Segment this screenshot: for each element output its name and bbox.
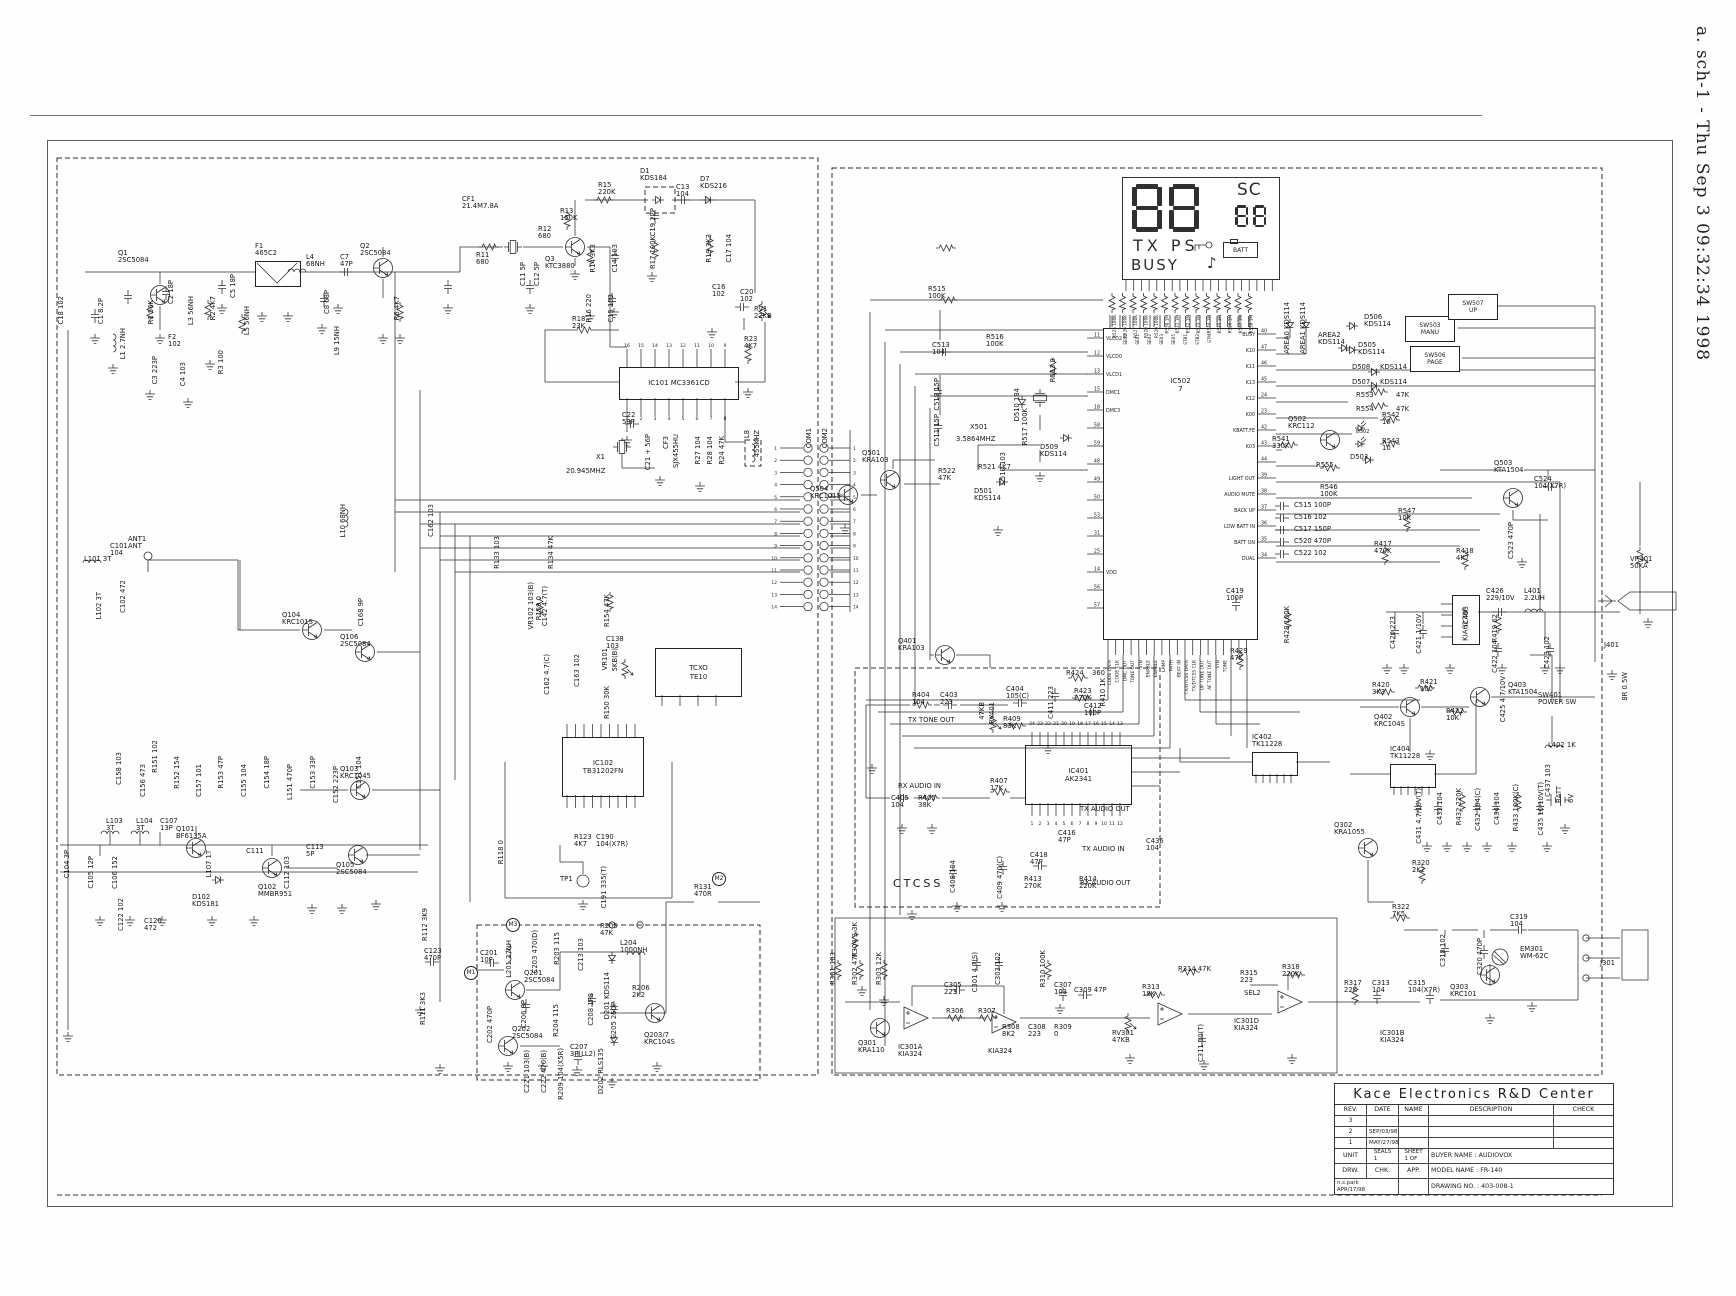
component-label: X1 — [596, 454, 605, 461]
component-label: KDS114 — [1380, 379, 1407, 386]
ground-icon — [1517, 558, 1527, 568]
pin-label: 34 — [1261, 553, 1267, 559]
component-label: C524 104(X7R) — [1534, 476, 1566, 491]
component-label: VR101 — [602, 648, 609, 670]
component-label: C162 4.7(C) — [544, 654, 551, 695]
pin-label: 31 — [1094, 531, 1100, 537]
pin-label: 2 — [640, 416, 643, 422]
pin-label: 20 — [1061, 721, 1067, 727]
pin-label: TONE OUT — [1130, 660, 1136, 684]
component-label: C104 3P — [64, 850, 71, 878]
component-label: C520 470P — [1294, 538, 1331, 545]
pin-label: 12 — [1094, 351, 1100, 357]
title-block-cell: SEP/03/98 — [1367, 1127, 1399, 1138]
title-block-cell: CHECK — [1554, 1104, 1613, 1116]
component-label: C17 104 — [726, 234, 733, 263]
component-label: R517 100K — [1022, 408, 1029, 445]
component-label: D501 KDS114 — [974, 488, 1001, 503]
ground-icon — [1643, 618, 1653, 628]
component-label: C305 223 — [944, 982, 962, 997]
component-label: R515 100K — [928, 286, 946, 301]
title-block-cell: MAY/27/98 — [1367, 1138, 1399, 1149]
ground-icon — [205, 360, 215, 370]
component-label: BATT — [1556, 786, 1563, 803]
pin-label: 16 — [624, 343, 630, 349]
seven-segment-digit — [1169, 184, 1199, 232]
component-label: EM301 WM-62C — [1520, 946, 1548, 961]
component-label: R112 3K9 — [422, 908, 429, 941]
pin-label: 37 — [1261, 505, 1267, 511]
component-label: C436 104 — [1146, 838, 1164, 853]
component-label: TP1 — [560, 876, 573, 883]
component-label: Q201 2SC5084 — [524, 970, 555, 985]
component-label: IC301A KIA324 — [898, 1044, 922, 1059]
component-label: C516 102 — [1294, 514, 1327, 521]
component-label: R521 4K7 — [978, 464, 1011, 471]
pin-label: 3 — [853, 470, 856, 476]
pin-label: 5 — [853, 495, 856, 501]
transistor-icon — [187, 839, 206, 858]
ic-part: AK2341 — [1065, 775, 1092, 783]
component-label: CF3 — [663, 436, 670, 449]
microphone-icon — [1492, 949, 1508, 965]
schematic-page: a. sch-1 - Thu Sep 3 09:32:34 1998 — [0, 0, 1736, 1296]
transistor-icon — [263, 859, 282, 878]
pin-label: 9 — [853, 544, 856, 550]
pin-label: 48 — [1094, 459, 1100, 465]
component-label: R151 102 — [152, 740, 159, 773]
ground-icon — [207, 916, 217, 926]
ground-icon — [371, 900, 381, 910]
pin-label: 24 — [1029, 721, 1035, 727]
component-label: R309 0 — [1054, 1024, 1072, 1039]
component-label: C221 103(B) — [524, 1050, 531, 1093]
seven-segment-digit — [1235, 205, 1248, 227]
component-label: R407 17K — [990, 778, 1008, 793]
title-block-cell: NAME — [1399, 1104, 1429, 1116]
transistor-icon — [881, 471, 900, 490]
component-label: C158 103 — [116, 752, 123, 785]
pin-label: 11 — [694, 343, 700, 349]
component-label: R322 7K5 — [1392, 904, 1410, 919]
title-block-cell: UNIT — [1335, 1149, 1367, 1164]
component-label: C418 47P — [1030, 852, 1048, 867]
title-block-cell: n.s.park APR/17/98 — [1335, 1179, 1399, 1194]
component-label: Q302 KRA1055 — [1334, 822, 1365, 837]
component-label: C106 152 — [112, 856, 119, 889]
title-block-cell — [1399, 1116, 1429, 1127]
title-block-cell: REV. — [1335, 1104, 1367, 1116]
component-label: R428 100K — [1284, 606, 1291, 643]
component-label: CF1 21.4M7.8A — [462, 196, 498, 211]
pin-label: 1 — [1031, 821, 1034, 827]
component-label: L10 68NH — [340, 504, 347, 537]
component-label: C313 104 — [1372, 980, 1390, 995]
component-label: R123 4K7 — [574, 834, 592, 849]
pin-label: 12 — [1117, 821, 1123, 827]
pin-label: 59 — [1094, 441, 1100, 447]
pin-label: AF TONE OUT — [1207, 660, 1213, 690]
component-label: C16 102 — [712, 284, 725, 299]
component-label: C403 223 — [940, 692, 958, 707]
ic-label: F1 465C2 — [255, 243, 277, 258]
component-label: 360 — [1092, 670, 1105, 677]
ground-icon — [1382, 664, 1392, 674]
ground-icon — [578, 900, 588, 910]
component-label: C205 250P — [611, 1002, 618, 1039]
ground-icon — [1445, 664, 1455, 674]
component-label: C308 223 — [1028, 1024, 1046, 1039]
pin-label: 38 — [1261, 489, 1267, 495]
component-label: C22 59P — [622, 412, 635, 427]
component-label: R308 8K2 — [1002, 1024, 1020, 1039]
led-icon — [1355, 437, 1366, 447]
component-label: C515 100P — [1294, 502, 1331, 509]
ic-ref: TCXO — [689, 664, 708, 672]
switch-sw507: SW507UP — [1448, 294, 1498, 320]
component-label: C155 104 — [241, 764, 248, 797]
title-block-cell — [1399, 1127, 1429, 1138]
component-label: COM1 — [806, 428, 813, 448]
component-label: R413 270K — [1024, 876, 1042, 891]
component-label: R307 — [978, 1008, 996, 1015]
component-label: R543 10 — [1382, 438, 1400, 453]
component-label: C153 33P — [310, 756, 317, 789]
component-label: R516 100K — [986, 334, 1004, 349]
pin-label: 11 — [853, 568, 859, 574]
component-label: C405 104 — [891, 795, 909, 810]
component-label: Q3 KTC3880 — [545, 256, 575, 271]
capacitor-icon — [218, 280, 226, 294]
component-label: C190 104(X7R) — [596, 834, 628, 849]
lcd-txps-text: TX PS — [1133, 236, 1199, 255]
component-label: C7 47P — [340, 254, 353, 269]
component-label: R206 2K2 — [632, 985, 650, 1000]
pin-label: 1 — [774, 446, 777, 452]
component-label: C3 223P — [152, 356, 159, 384]
component-label: 6V — [1568, 794, 1575, 803]
seven-segment-digit — [1132, 184, 1162, 232]
component-label: C511 15P — [934, 414, 941, 447]
component-label: R24 47K — [719, 436, 726, 465]
pin-label: 11 — [771, 568, 777, 574]
ground-icon — [652, 1062, 662, 1072]
component-label: 47KB — [979, 702, 986, 720]
component-label: R16 220 — [586, 294, 593, 323]
component-label: C517 150P — [1294, 526, 1331, 533]
pin-label: 50 — [1094, 495, 1100, 501]
pin-label: 39 — [1261, 473, 1267, 479]
ground-icon — [1560, 824, 1570, 834]
component-label: C163 102 — [574, 654, 581, 687]
title-block-cell — [1429, 1127, 1554, 1138]
pin-label: 15 — [1094, 387, 1100, 393]
pin-label: ENABLE — [1153, 660, 1159, 678]
component-label: R17 100K — [650, 236, 657, 269]
pin-label: 17 — [1085, 721, 1091, 727]
capacitor-icon — [1275, 514, 1289, 522]
pin-label: 7 — [1079, 821, 1082, 827]
component-label: R522 47K — [938, 468, 956, 483]
ground-icon — [1485, 1014, 1495, 1024]
component-label: C154 18P — [264, 756, 271, 789]
pin-label: ENABLE — [1146, 660, 1152, 678]
component-label: R301 103 — [830, 952, 837, 985]
component-label: L402 1K — [1548, 742, 1576, 749]
component-label: IC301D KIA324 — [1234, 1018, 1259, 1033]
ground-icon — [1542, 842, 1552, 852]
component-label: R419 62 — [1492, 614, 1499, 643]
component-label: R12 680 — [538, 226, 551, 241]
seven-segment-digit — [1253, 205, 1266, 227]
title-block-cell: CHK. — [1367, 1164, 1399, 1179]
pin-label: 11 — [1094, 333, 1100, 339]
component-label: C162 103 — [428, 504, 435, 537]
ground-icon — [435, 1064, 445, 1074]
component-label: D503 — [1350, 454, 1368, 461]
component-label: C319 104 — [1510, 914, 1528, 929]
component-label: R424 — [1066, 670, 1084, 677]
ground-icon — [647, 272, 657, 282]
key-icon — [1193, 240, 1215, 256]
pin-label: 25 — [1094, 549, 1100, 555]
component-label: C168 9P — [358, 598, 365, 626]
ground-icon — [249, 916, 259, 926]
pin-label: CODE DATA — [1107, 660, 1113, 685]
ground-icon — [155, 334, 165, 344]
pin-label: 57 — [1094, 603, 1100, 609]
component-label: SJX455HU — [673, 434, 680, 468]
pin-label: 11 — [1109, 821, 1115, 827]
component-label: R1 56K — [148, 300, 155, 324]
pin-label: 10 — [708, 343, 714, 349]
title-block-cell: DESCRIPTION — [1429, 1104, 1554, 1116]
component-label: Q403 KTA1504 — [1508, 682, 1538, 697]
component-label: C222 470(B) — [541, 1050, 548, 1093]
capacitor-icon — [1275, 550, 1289, 558]
component-label: C434 104 — [1494, 792, 1501, 825]
component-label: X501 — [970, 424, 988, 431]
ground-icon — [1527, 1002, 1537, 1012]
pin-label: 44 — [1261, 457, 1267, 463]
ground-icon — [1399, 664, 1409, 674]
capacitor-icon — [124, 290, 132, 304]
ground-icon — [307, 904, 317, 914]
title-block-cell — [1554, 1138, 1613, 1149]
component-label: RX AUDIO IN — [898, 783, 941, 790]
component-label: C11 5P — [520, 262, 527, 286]
transistor-icon — [1359, 839, 1378, 858]
component-label: R513 9 — [1050, 358, 1057, 382]
component-label: C422 104 — [1492, 640, 1499, 673]
component-label: Q401 KRA103 — [898, 638, 925, 653]
component-label: SW401 POWER SW — [1538, 692, 1576, 707]
component-label: R15 220K — [598, 182, 615, 197]
pin-label: 6 — [853, 507, 856, 513]
component-label: D505 KDS114 — [1358, 342, 1385, 357]
drawing-no: DRAWING NO. : 403-008-1 — [1429, 1179, 1613, 1194]
pin-label: 8 — [774, 531, 777, 537]
ground-icon — [840, 524, 850, 534]
ic-ic101: IC101 MC3361CD — [619, 367, 739, 400]
pin-label: 45 — [1261, 377, 1267, 383]
ground-icon — [63, 1032, 73, 1042]
ic-tcxo: TCXOTE10 — [655, 648, 742, 697]
pin-label: 8 — [1087, 821, 1090, 827]
component-label: L201 27NH — [506, 940, 513, 978]
component-label: C318 102 — [1440, 934, 1447, 967]
pin-label: UP TONE OUT — [1199, 660, 1205, 691]
component-label: 455KHZ — [754, 430, 761, 457]
title-block-cell: SEALS 1 — [1367, 1149, 1399, 1164]
component-label: RV1 22KB — [754, 306, 772, 321]
title-block-cell: SHEET 1 OF — [1399, 1149, 1429, 1164]
component-label: C426 229/10V — [1486, 588, 1515, 603]
component-label: Q503 KTA1504 — [1494, 460, 1524, 475]
ground-icon — [183, 398, 193, 408]
component-label: D509 KDS114 — [1040, 444, 1067, 459]
ground-icon — [655, 476, 665, 486]
pin-label: 14 — [1109, 721, 1115, 727]
component-label: R2 4K7 — [210, 296, 217, 320]
pin-label: 19 — [1069, 721, 1075, 727]
buyer-name: BUYER NAME : AUDIOVOX — [1429, 1149, 1613, 1164]
ground-icon — [503, 1062, 513, 1072]
component-label: C307 103 — [1054, 982, 1072, 997]
component-label: C122 102 — [118, 898, 125, 931]
component-label: C208 1P8 — [588, 993, 595, 1026]
pin-label: 10 — [853, 556, 859, 562]
component-label: Q106 2SC5084 — [340, 634, 371, 649]
opamp-icon — [1278, 991, 1302, 1013]
switch-label: PAGE — [1427, 359, 1443, 367]
component-label: C425 4.7/10V — [1500, 676, 1507, 722]
component-label: L107 1T — [206, 850, 213, 877]
pin-label: 18 — [1077, 721, 1083, 727]
pin-label: 6 — [1071, 821, 1074, 827]
component-label: R422 10K — [1446, 708, 1464, 723]
pin-label: 14 — [652, 343, 658, 349]
pin-label: 13 — [771, 592, 777, 598]
pin-label: 43 — [1261, 441, 1267, 447]
component-label: 20.945MHZ — [566, 468, 605, 475]
pin-label: 8 — [724, 416, 727, 422]
component-label: R313 18K — [1142, 984, 1160, 999]
component-label: R410 1K — [1100, 678, 1107, 707]
ic-label: IC404 TK11228 — [1390, 746, 1420, 761]
pin-label: 46 — [1261, 361, 1267, 367]
component-label: R404 104 — [912, 692, 930, 707]
component-label: C8 68P — [324, 290, 331, 314]
component-label: Q2 2SC5084 — [360, 243, 391, 258]
component-label: C303 102 — [995, 952, 1002, 985]
component-label: RX AUDIO OUT — [1080, 880, 1130, 887]
pin-label: 3 — [774, 470, 777, 476]
ground-icon — [1442, 842, 1452, 852]
pin-label: 23 — [1261, 409, 1267, 415]
switch-ref: SW503 — [1419, 322, 1440, 330]
ground-icon — [743, 388, 753, 398]
component-label: C519 15P — [934, 378, 941, 411]
component-label: Q301 KRA110 — [858, 1040, 885, 1055]
pin-label: 18 — [1094, 405, 1100, 411]
title-block-cell: 2 — [1335, 1127, 1367, 1138]
component-label: Q504 KRC101S — [810, 486, 841, 501]
component-label: C207 3P(LL2) — [570, 1044, 596, 1059]
ic-label: IC402 TK11228 — [1252, 734, 1282, 749]
pin-label: 4 — [1055, 821, 1058, 827]
component-label: C14 103 — [612, 244, 619, 273]
component-label: Q402 KRC104S — [1374, 714, 1405, 729]
ic-ic102: IC102TB31202FN — [562, 737, 644, 797]
component-label: R542 10 — [1382, 412, 1400, 427]
ground-icon — [927, 824, 937, 834]
component-label: KDS114 — [1380, 364, 1407, 371]
component-label: L204 1000NH — [620, 940, 648, 955]
title-block-cell — [1554, 1116, 1613, 1127]
resistor-icon — [936, 245, 956, 251]
component-label: R19 3K3 — [706, 234, 713, 263]
component-label: C433 104 — [1437, 792, 1444, 825]
ground-icon — [607, 1078, 617, 1088]
component-label: C522 102 — [1294, 550, 1327, 557]
component-label: C157 101 — [196, 764, 203, 797]
pin-label: DMC OUT — [1122, 660, 1128, 681]
component-label: AREA1 KDS114 — [1300, 302, 1307, 354]
component-label: R423 270K — [1074, 688, 1092, 703]
transistor-icon — [506, 981, 525, 1000]
switch-ref: SW506 — [1424, 352, 1445, 360]
lcd-busy-text: BUSY — [1131, 256, 1179, 274]
ic-part: KIA6278F — [1462, 608, 1470, 641]
component-label: L101 3T — [84, 556, 111, 563]
pin-label: 4 — [668, 416, 671, 422]
crystal-icon — [504, 241, 522, 254]
component-label: C419 100P — [1226, 588, 1244, 603]
component-label: C416 47P — [1058, 830, 1076, 845]
component-label: C206 8P — [521, 1000, 528, 1028]
transistor-icon — [566, 238, 585, 257]
component-label: C151 104 — [356, 756, 363, 789]
component-label: C435 10/10V(T) — [1538, 782, 1545, 836]
pin-label: 3 — [654, 416, 657, 422]
component-label: Q101 BF6135A — [176, 826, 207, 841]
component-label: C111 — [246, 848, 264, 855]
pin-label: 9 — [724, 343, 727, 349]
component-label: SEL2 — [1244, 990, 1261, 997]
pin-label: 47 — [1261, 345, 1267, 351]
component-label: R154 47K — [604, 594, 611, 627]
resistor-icon — [977, 1015, 997, 1021]
title-block-cell — [1399, 1179, 1429, 1194]
component-label: R209 104(X5R) — [558, 1048, 565, 1100]
component-label: R318 220K — [1282, 964, 1300, 979]
pin-label: 2 — [774, 458, 777, 464]
component-label: R432 220K — [1456, 788, 1463, 825]
pin-label: 13 — [1117, 721, 1123, 727]
diode-icon — [609, 952, 616, 964]
component-label: R11 680 — [476, 252, 489, 267]
pin-label: LAMP — [1161, 660, 1167, 672]
component-label: C203 470(D) — [532, 930, 539, 973]
component-label: C408 104 — [950, 860, 957, 893]
pin-label: 3 — [1047, 821, 1050, 827]
component-label: C320 470P — [1477, 938, 1484, 975]
component-label: R6 4K7 — [394, 296, 401, 320]
component-label: M2 — [712, 872, 726, 886]
ic-ic402 — [1252, 752, 1298, 776]
component-label: L103 3T — [106, 818, 123, 833]
